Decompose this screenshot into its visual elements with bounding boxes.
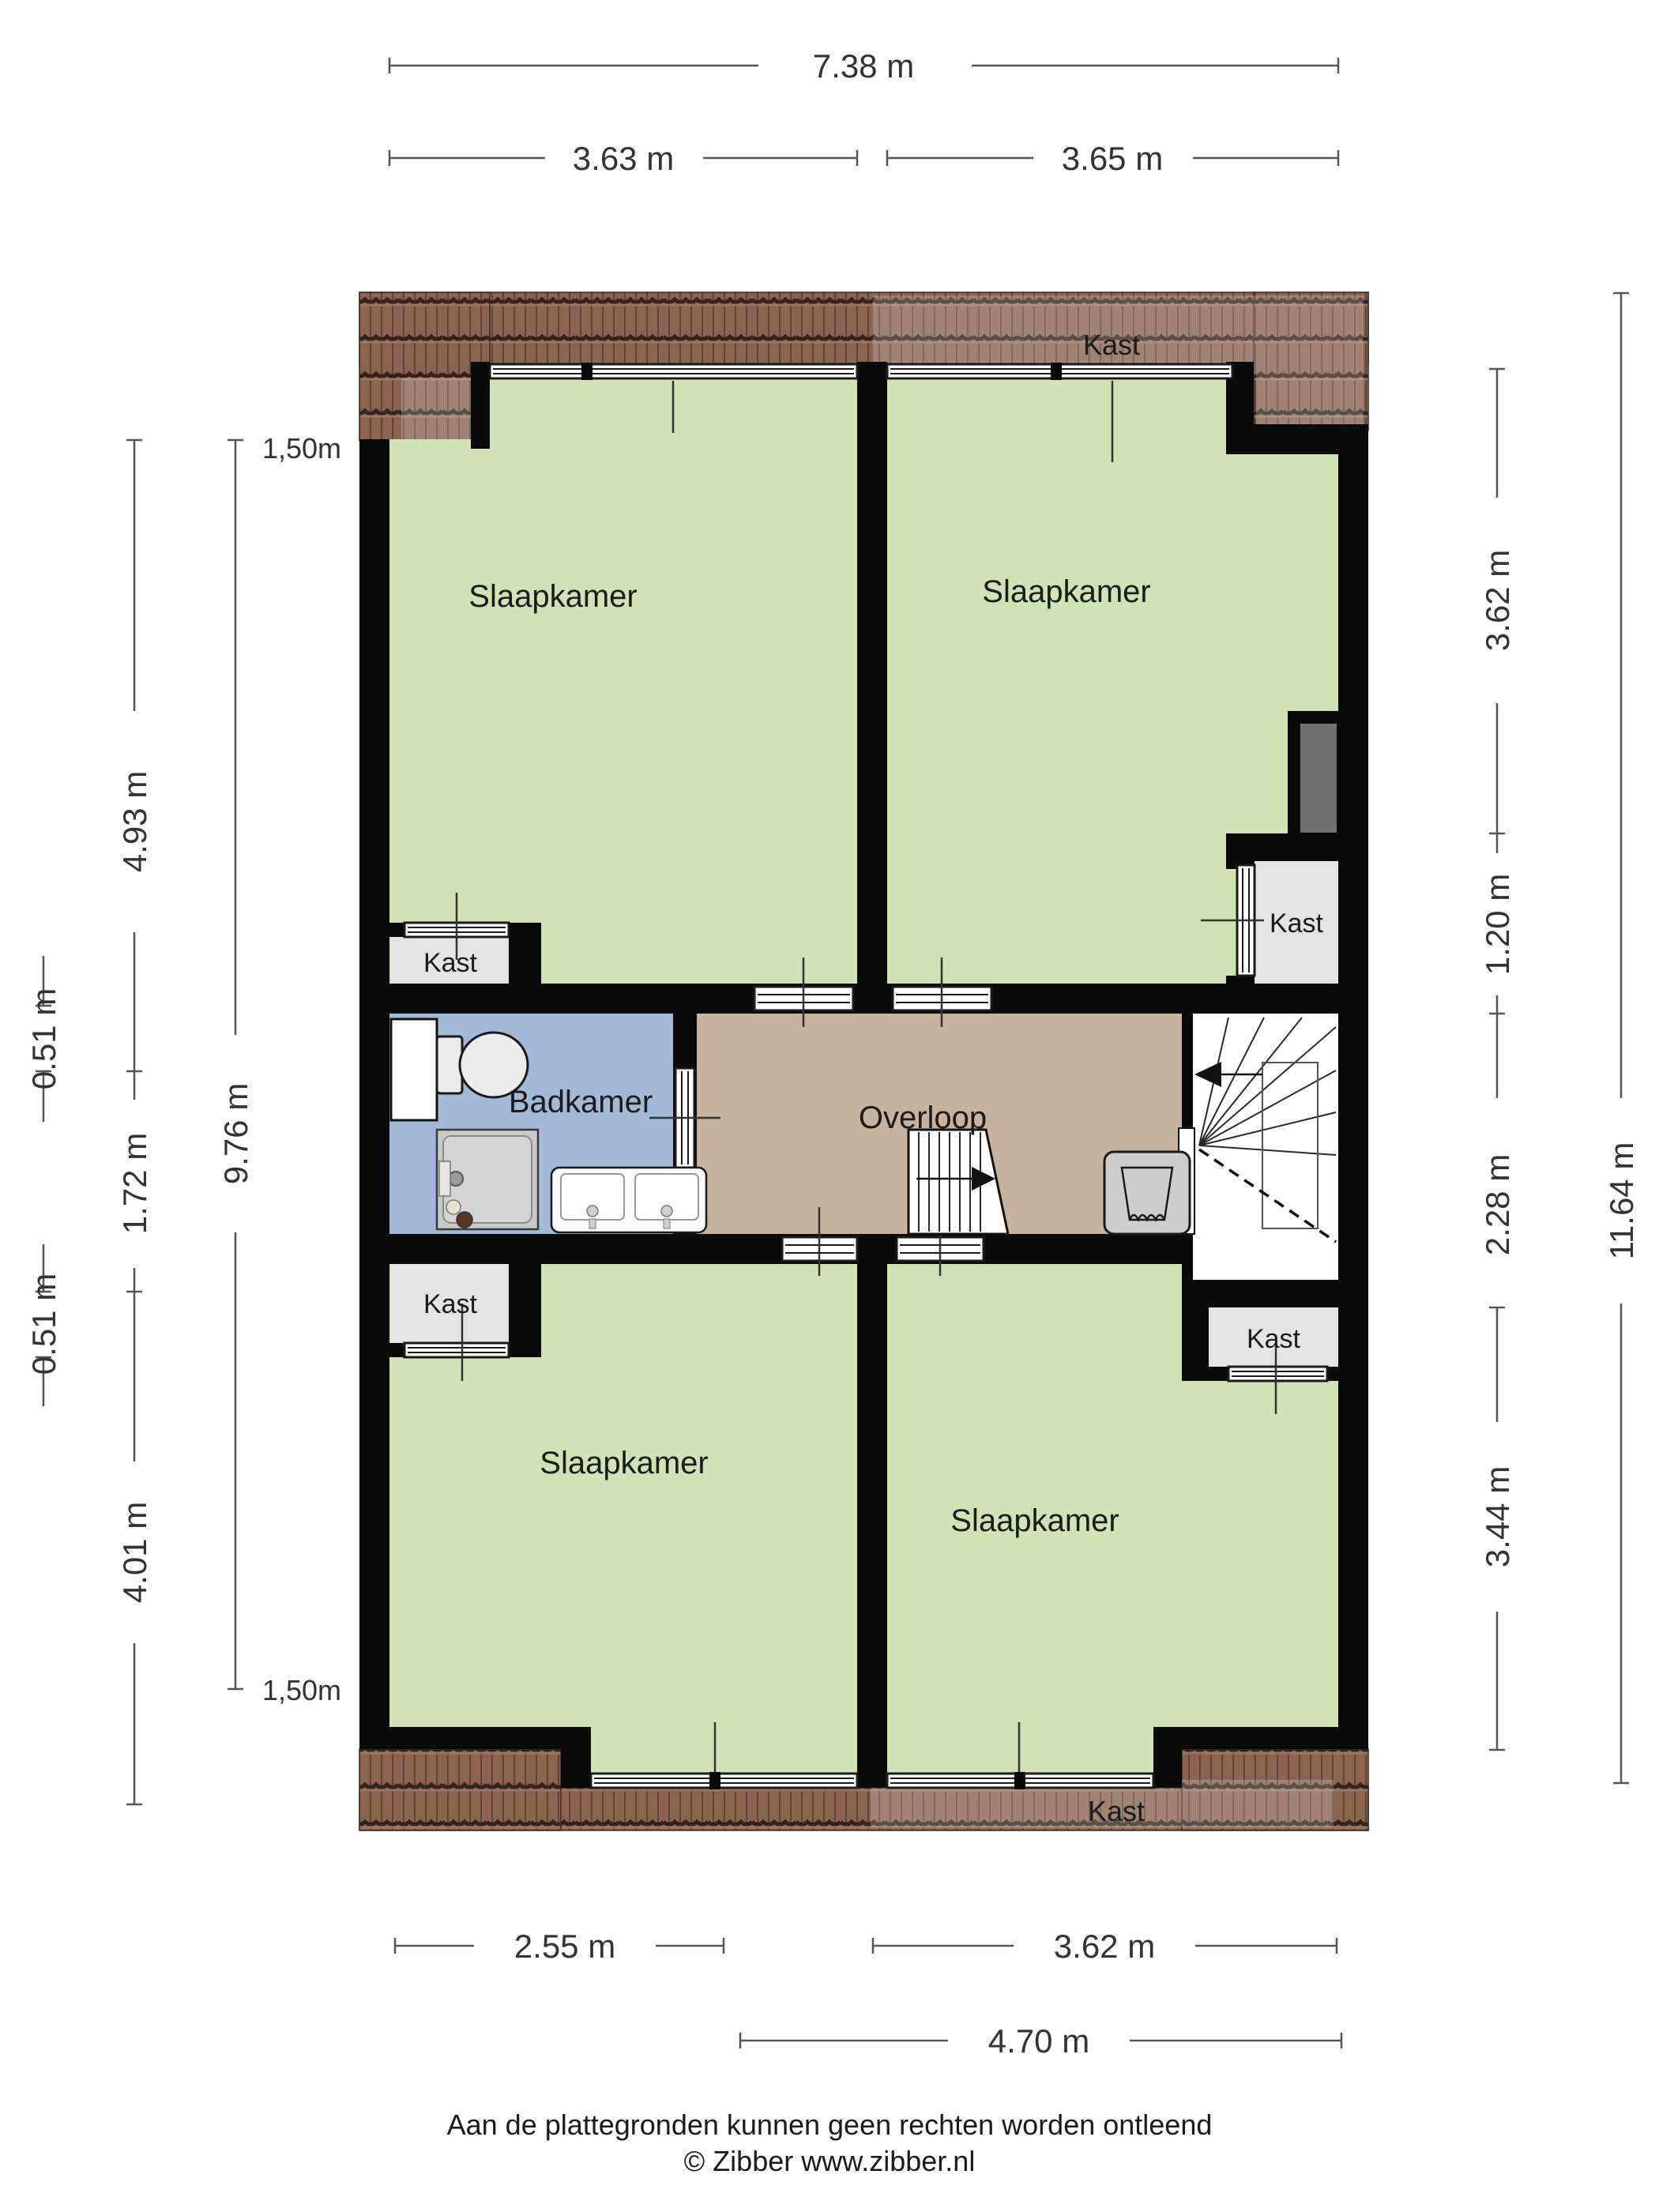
dim-top-total: 7.38 m [813,47,914,85]
dim-left-upper-room: 4.93 m [116,771,153,872]
wall-closet-tl-corner [389,923,404,937]
dim-roofline-top: 1,50m [262,432,341,465]
dim-right-closet: 1.20 m [1479,874,1516,975]
label-bathroom: Badkamer [509,1085,653,1119]
floorplan-page: Slaapkamer Slaapkamer Slaapkamer Slaapka… [0,0,1659,2212]
wall-post-bottom-left [561,1727,591,1788]
dim-top-right-room: 3.65 m [1062,140,1163,177]
label-bedroom-top-right: Slaapkamer [982,574,1150,609]
wall-knee-top-right [1254,424,1368,454]
dim-bottom-left-room: 2.55 m [514,1928,615,1965]
wall-knee-bottom-right [1182,1727,1368,1749]
double-sink-icon [551,1168,706,1232]
wall-closet-right-left-upper [1226,833,1255,869]
dim-right-total: 11.64 m [1603,1142,1640,1260]
dim-left-lower-room: 4.01 m [116,1502,153,1603]
duct-niche [1300,724,1337,833]
dim-left-lower-closet: 0.51 m [25,1273,62,1375]
label-closet-bottom-left: Kast [423,1289,478,1319]
wall-middle-upper [857,362,887,1014]
label-closet-attic-bottom: Kast [1088,1795,1145,1827]
window-top-right [887,363,1232,380]
wall-closet-br-left [1182,1307,1209,1381]
attic-overlay-left-notch [401,378,474,439]
dim-bottom-right-room: 3.62 m [1054,1928,1155,1965]
shower-icon [437,1130,538,1229]
wall-closet-br-post-right [1327,1367,1338,1381]
room-bedroom-top-left [389,364,857,1014]
wall-knee-bottom-left [359,1727,561,1749]
wall-closet-bl-right [509,1264,541,1343]
label-bedroom-bottom-right: Slaapkamer [950,1503,1119,1538]
attic-closet-overlay-top-right [1256,365,1364,431]
dim-roofline-bottom: 1,50m [262,1674,341,1706]
wall-stairwell-bottom [1182,1280,1338,1307]
footer: Aan de plattegronden kunnen geen rechten… [447,2109,1213,2177]
dimline-left-span [228,440,243,1689]
wall-middle-lower [857,1234,887,1788]
door-closet-bottom-left [404,1343,509,1357]
wall-closet-tl-right [509,923,541,1014]
dim-left-bathroom: 1.72 m [116,1133,153,1234]
window-bottom-right [887,1772,1153,1789]
footer-disclaimer: Aan de plattegronden kunnen geen rechten… [447,2109,1213,2141]
dim-bottom-span: 4.70 m [988,2022,1089,2060]
window-top-left [490,363,857,380]
label-landing: Overloop [859,1100,987,1135]
dim-left-span: 9.76 m [217,1083,254,1184]
footer-copyright: © Zibber www.zibber.nl [684,2145,976,2177]
wall-closet-br-post-left [1209,1367,1228,1381]
dimline-right-total [1613,293,1629,1783]
window-bottom-left [591,1772,857,1789]
wall-closet-bl-post-left [389,1343,404,1357]
dim-top-left-room: 3.63 m [573,140,674,177]
roof-notch-bottom-left [359,1749,561,1830]
label-closet-bottom-right: Kast [1247,1324,1301,1354]
label-closet-top-left: Kast [423,948,478,978]
dim-right-upper-room: 3.62 m [1479,550,1516,651]
wall-outer-left [359,439,389,1749]
label-bedroom-bottom-left: Slaapkamer [540,1446,708,1480]
wall-closet-bl-post-right [509,1343,541,1357]
laundry-chute [1104,1152,1190,1234]
dim-right-lower-room: 3.44 m [1479,1466,1516,1567]
label-bedroom-top-left: Slaapkamer [468,579,637,614]
wall-outer-right [1338,424,1368,1749]
dim-left-upper-closet: 0.51 m [25,988,62,1089]
label-closet-right: Kast [1270,908,1324,939]
wall-post-bottom-right [1153,1727,1182,1788]
bathroom-niche [391,1019,437,1120]
dim-right-stairwell: 2.28 m [1479,1154,1516,1255]
floorplan-canvas: Slaapkamer Slaapkamer Slaapkamer Slaapka… [0,0,1659,2212]
door-closet-bottom-right [1228,1367,1327,1381]
dimline-left-upper-room [126,440,142,1071]
label-closet-attic-top: Kast [1083,329,1140,361]
wall-closet-right-left-lower [1226,976,1255,1014]
wall-post-top-left [471,362,490,449]
